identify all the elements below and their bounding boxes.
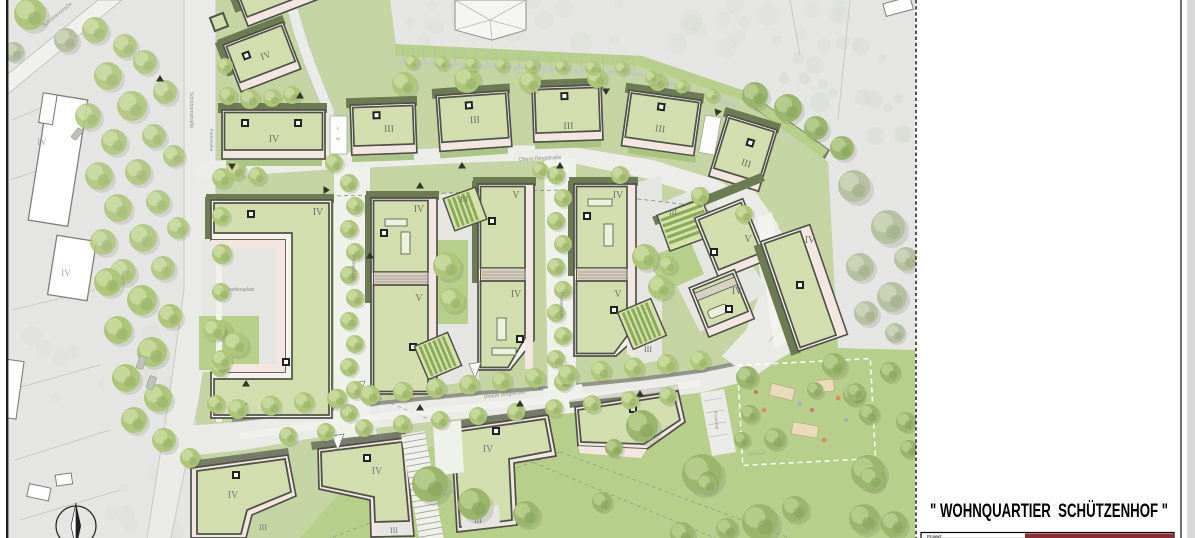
svg-text:" WOHNQUARTIER SCHÜTZENHOF ": " WOHNQUARTIER SCHÜTZENHOF " bbox=[930, 501, 1168, 522]
svg-text:Projekt:: Projekt: bbox=[927, 534, 942, 538]
